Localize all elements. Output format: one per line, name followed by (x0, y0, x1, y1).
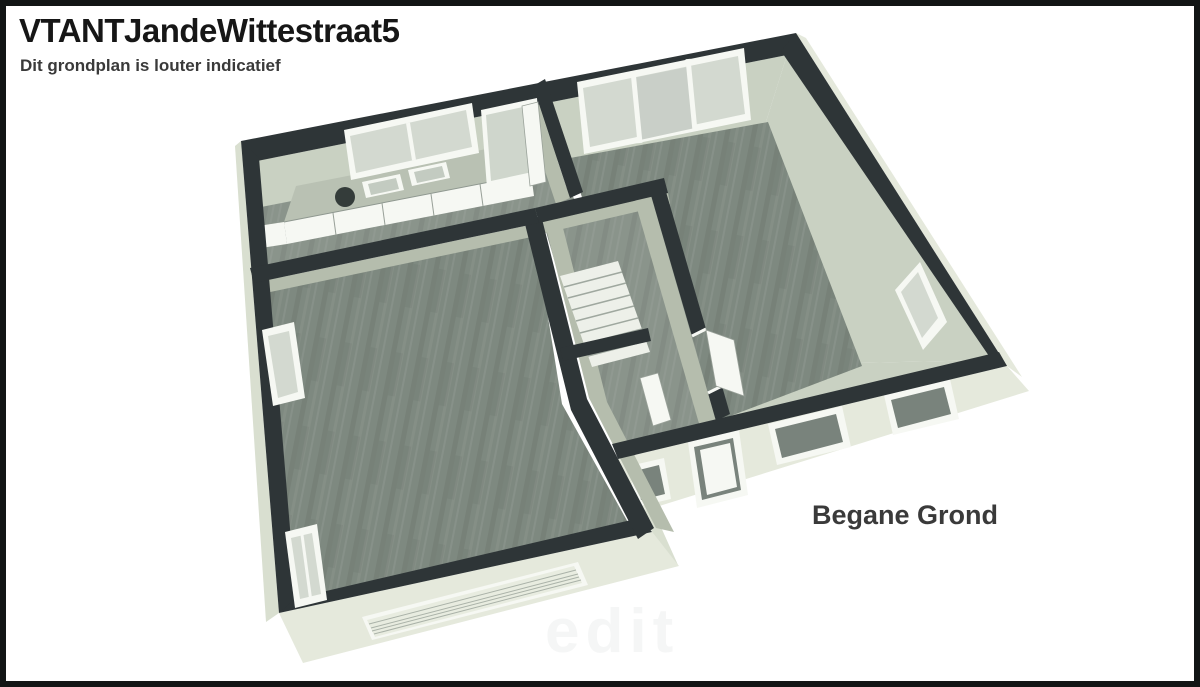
floor-label: Begane Grond (812, 500, 998, 531)
floorplan-page: VTANTJandeWittestraat5 Dit grondplan is … (0, 0, 1200, 687)
back-door (481, 98, 546, 188)
floorplan-drawing (0, 0, 1200, 687)
big-room-window-pane-mid (633, 67, 695, 140)
watermark: edit (545, 596, 679, 667)
page-title: VTANTJandeWittestraat5 (19, 12, 400, 50)
front-door (688, 430, 748, 508)
cooktop (335, 187, 355, 207)
page-subtitle: Dit grondplan is louter indicatief (20, 56, 281, 76)
